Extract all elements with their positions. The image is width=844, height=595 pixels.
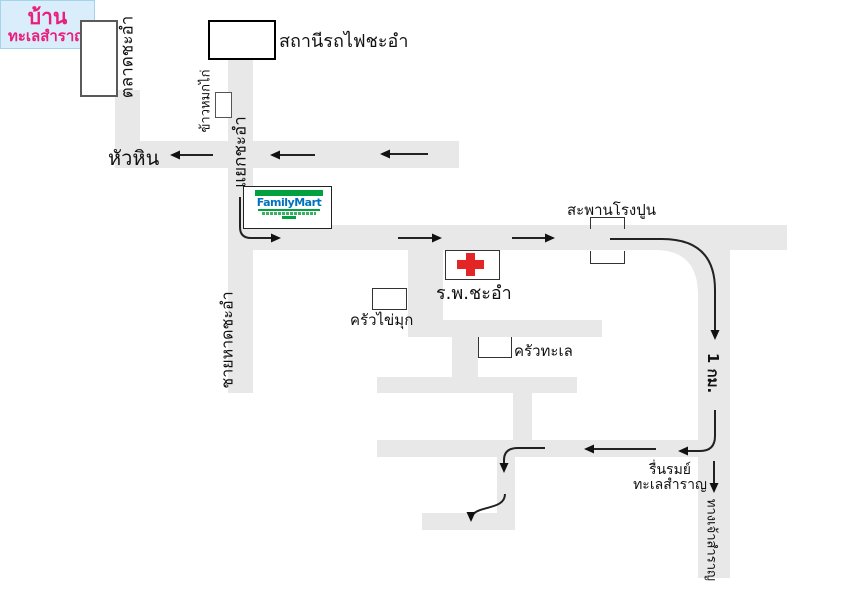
label-entrance-road: ทางเจ้าสำราญ [702, 499, 723, 581]
pearl-kitchen-building [372, 288, 407, 310]
label-resort-line2: ทะเลสำราญ [620, 478, 720, 493]
road-return [377, 440, 730, 457]
direction-map: FamilyMart บ้าน ทะเลสำราญ ตลาดชะอำ สถานี… [0, 0, 844, 595]
label-hospital: ร.พ.ชะอำ [436, 278, 512, 307]
chicken-rice-stall-building [215, 92, 232, 118]
sea-kitchen-building [478, 337, 512, 358]
road-corner-fillet [655, 250, 698, 295]
label-pearl-kitchen: ครัวไข่มุก [350, 308, 413, 332]
familymart-logo-text: FamilyMart [257, 196, 322, 209]
label-sea-kitchen: ครัวทะเล [514, 339, 573, 363]
train-station-building [208, 20, 276, 60]
label-resort: รื่นรมย์ ทะเลสำราญ [620, 463, 720, 493]
road-huahin [115, 141, 459, 168]
familymart-logo: FamilyMart [255, 190, 323, 224]
label-market: ตลาดชะอำ [114, 16, 141, 98]
label-hua-hin: หัวหิน [108, 142, 159, 174]
red-cross-icon [466, 253, 475, 276]
label-bridge: สะพานโรงปูน [567, 198, 656, 222]
familymart-tagline [262, 212, 316, 215]
label-chicken-rice: ข้าวหมกไก่ [195, 70, 216, 133]
label-resort-line1: รื่นรมย์ [620, 463, 720, 478]
road-destination-spur [497, 457, 515, 513]
market-building [80, 20, 118, 97]
bridge-rail-bottom [590, 251, 625, 264]
road-branch-d [377, 377, 577, 393]
familymart-tagline-bar [282, 216, 296, 219]
label-distance-1km: 1 กม. [701, 353, 725, 393]
familymart-logo-underline [258, 209, 321, 211]
road-branch-b [408, 320, 602, 337]
label-beach-road: ชายหาดชะอำ [216, 291, 241, 388]
label-train-station: สถานีรถไฟชะอำ [279, 26, 408, 55]
destination-name-line2: ทะเลสำราญ [8, 28, 87, 44]
road-destination-front [422, 513, 515, 530]
road-branch-e [513, 393, 532, 440]
label-junction: แยกชะอำ [227, 116, 254, 188]
destination-name-line1: บ้าน [28, 6, 67, 28]
